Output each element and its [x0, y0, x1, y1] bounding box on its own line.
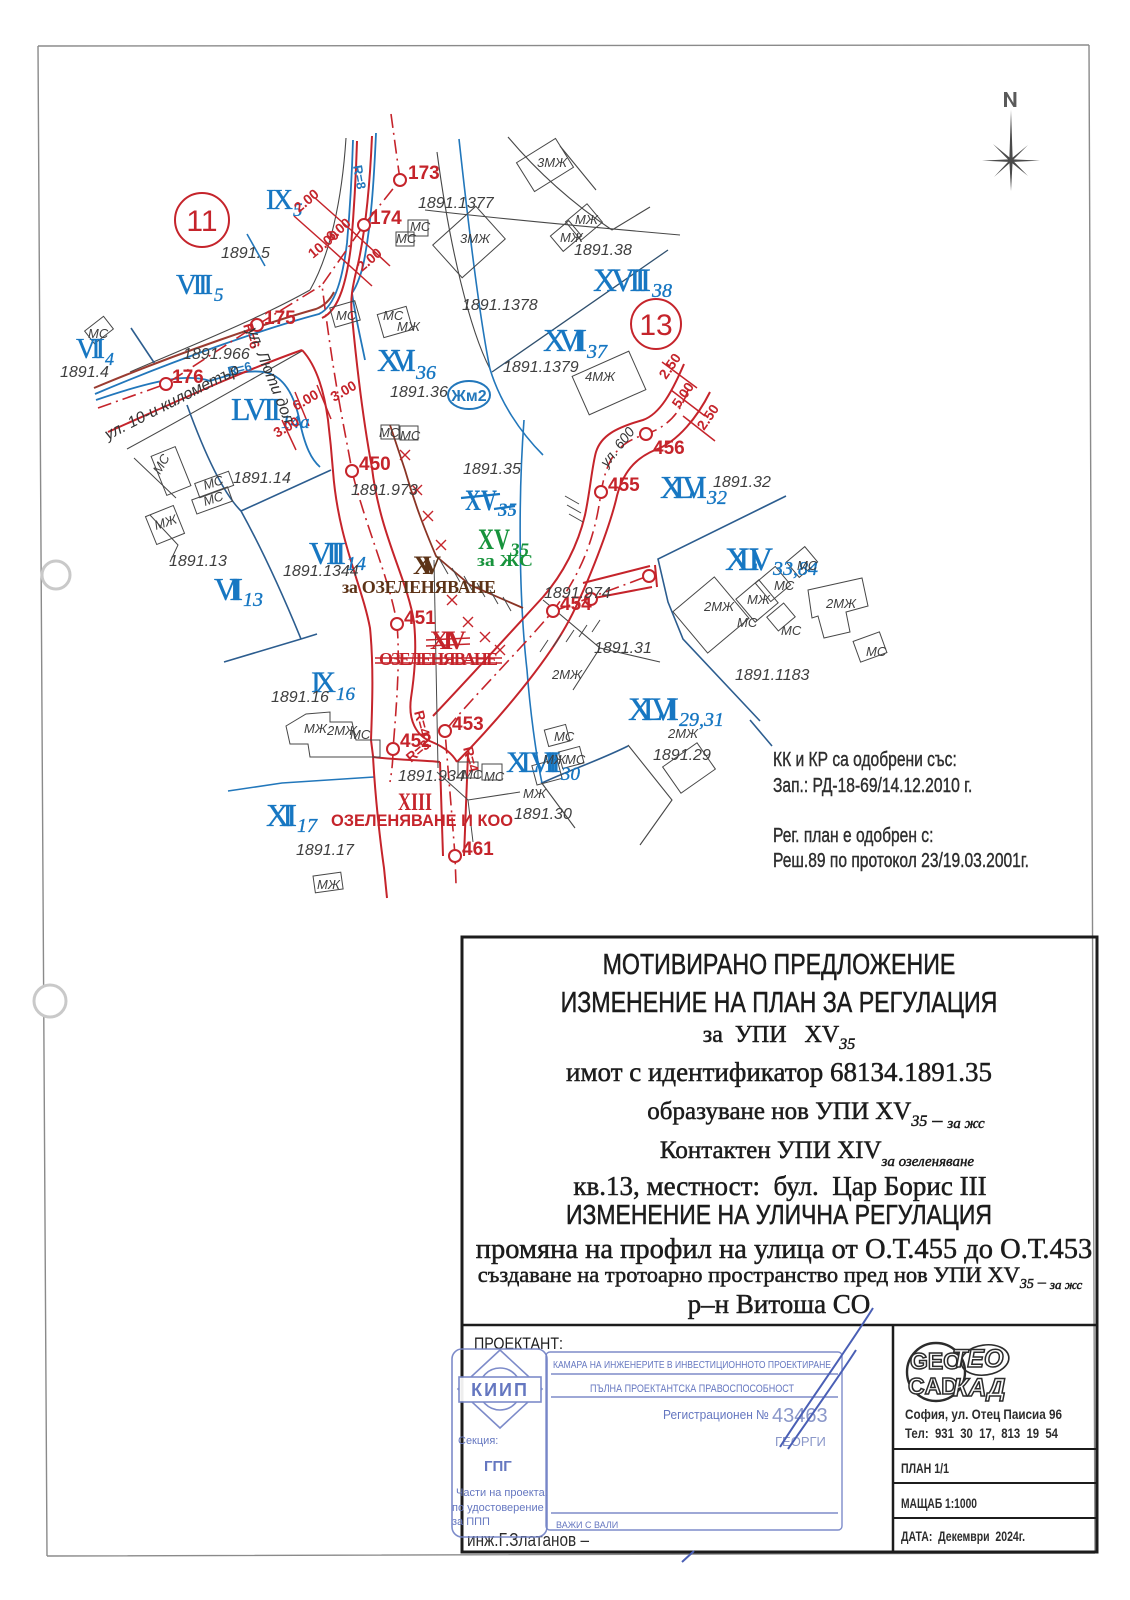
svg-text:МС: МС [797, 558, 818, 573]
svg-text:XLVII: XLVII [628, 692, 679, 728]
svg-text:за ППП: за ППП [452, 1516, 490, 1528]
svg-text:МС: МС [774, 578, 795, 593]
svg-text:1891.1344: 1891.1344 [283, 563, 359, 580]
svg-text:2МЖ: 2МЖ [825, 596, 857, 611]
svg-text:1891.30: 1891.30 [514, 806, 572, 823]
svg-text:1891.32: 1891.32 [713, 474, 771, 491]
svg-text:Регистрационен №: Регистрационен № [663, 1407, 769, 1422]
svg-text:ИЗМЕНЕНИЕ НА УЛИЧНА РЕГУЛАЦИЯ: ИЗМЕНЕНИЕ НА УЛИЧНА РЕГУЛАЦИЯ [566, 1200, 992, 1231]
svg-text:МС: МС [462, 767, 483, 782]
svg-text:ПЛАН 1/1: ПЛАН 1/1 [901, 1460, 949, 1476]
svg-text:451: 451 [404, 608, 436, 629]
svg-text:IX: IX [266, 185, 293, 216]
svg-text:16: 16 [336, 684, 356, 705]
svg-text:МС: МС [400, 428, 421, 443]
svg-text:36: 36 [415, 362, 436, 384]
svg-text:XLIV: XLIV [725, 542, 773, 578]
svg-text:1891.1183: 1891.1183 [735, 667, 810, 684]
svg-text:VII: VII [214, 571, 243, 607]
svg-text:455: 455 [608, 475, 640, 496]
svg-text:1891.1379: 1891.1379 [503, 359, 579, 376]
svg-text:МЖ: МЖ [575, 212, 599, 227]
svg-text:ПЪЛНА ПРОЕКТАНТСКА ПРАВОСПОСОБ: ПЪЛНА ПРОЕКТАНТСКА ПРАВОСПОСОБНОСТ [590, 1383, 794, 1395]
svg-text:МС: МС [336, 308, 357, 323]
svg-text:2МЖ: 2МЖ [667, 726, 699, 741]
svg-text:за ОЗЕЛЕНЯВАНЕ: за ОЗЕЛЕНЯВАНЕ [342, 577, 496, 597]
svg-text:КАМАРА НА ИНЖЕНЕРИТЕ В ИНВЕСТИ: КАМАРА НА ИНЖЕНЕРИТЕ В ИНВЕСТИЦИОННОТО П… [553, 1359, 831, 1371]
svg-text:453: 453 [452, 714, 484, 735]
svg-text:Зап.: РД-18-69/14.12.2010 г.: Зап.: РД-18-69/14.12.2010 г. [773, 774, 972, 796]
svg-text:173: 173 [408, 163, 440, 184]
svg-text:за ЖС: за ЖС [477, 551, 533, 570]
svg-text:1891.4: 1891.4 [60, 364, 109, 381]
svg-text:МОТИВИРАНО ПРЕДЛОЖЕНИЕ: МОТИВИРАНО ПРЕДЛОЖЕНИЕ [603, 947, 956, 980]
svg-text:МЖ: МЖ [152, 511, 179, 533]
svg-text:МС: МС [484, 769, 505, 784]
svg-text:образуване нов УПИ XV35 – за ж: образуване нов УПИ XV35 – за жс [647, 1098, 985, 1132]
svg-text:1891.973: 1891.973 [351, 482, 418, 499]
svg-text:КИИП: КИИП [471, 1380, 529, 1400]
svg-text:София, ул. Отец Паисиа 96: София, ул. Отец Паисиа 96 [905, 1406, 1062, 1422]
svg-text:XV: XV [465, 484, 497, 517]
svg-text:4МЖ: 4МЖ [585, 369, 616, 384]
svg-text:XII: XII [266, 797, 297, 833]
svg-text:30: 30 [560, 764, 581, 785]
svg-text:КАД: КАД [953, 1374, 1005, 1402]
svg-text:МЖ: МЖ [543, 752, 567, 767]
svg-text:МЖ: МЖ [317, 877, 341, 892]
svg-text:МС: МС [379, 425, 400, 440]
svg-text:ГПГ: ГПГ [484, 1458, 512, 1475]
svg-text:МЖ: МЖ [397, 319, 421, 334]
svg-text:1891.1377: 1891.1377 [418, 195, 495, 212]
svg-text:промяна на профил на улица от: промяна на профил на улица от О.Т.455 до… [476, 1234, 1092, 1265]
svg-text:МС: МС [781, 623, 802, 638]
svg-text:кв.13, местност: бул. Цар Бо: кв.13, местност: бул. Цар Борис III [573, 1171, 986, 1201]
svg-text:Тел: 931 30 17, 813 19 5: Тел: 931 30 17, 813 19 54 [905, 1425, 1058, 1441]
svg-text:инж.Г.Златанов –: инж.Г.Златанов – [467, 1530, 589, 1550]
svg-text:ОЗЕЛЕНЯВАНЕ И КОО: ОЗЕЛЕНЯВАНЕ И КОО [331, 812, 513, 830]
svg-text:5: 5 [214, 285, 224, 306]
svg-text:1891.13: 1891.13 [169, 553, 227, 570]
svg-text:ВАЖИ С ВАЛИ: ВАЖИ С ВАЛИ [556, 1520, 618, 1530]
svg-text:XVI: XVI [377, 342, 416, 378]
svg-text:МС: МС [396, 231, 417, 246]
svg-text:ОЗЕЛЕНЯВАНЕ: ОЗЕЛЕНЯВАНЕ [379, 649, 498, 669]
svg-text:38: 38 [651, 280, 672, 302]
svg-text:МС: МС [350, 727, 371, 742]
svg-text:2.50: 2.50 [655, 350, 684, 382]
svg-text:ПРОЕКТАНТ:: ПРОЕКТАНТ: [474, 1334, 563, 1353]
svg-text:МС: МС [88, 326, 109, 341]
svg-text:1891.36: 1891.36 [390, 384, 448, 401]
svg-text:461: 461 [462, 839, 494, 860]
svg-text:Рег. план е одобрен с:: Рег. план е одобрен с: [773, 824, 933, 846]
svg-text:17: 17 [297, 815, 318, 837]
svg-text:XVIII: XVIII [593, 263, 651, 299]
svg-text:175: 175 [264, 308, 296, 329]
svg-text:създаване на тротоарно простра: създаване на тротоарно пространство пред… [478, 1262, 1083, 1292]
svg-text:ДАТА: Декември 2024г.: ДАТА: Декември 2024г. [901, 1528, 1025, 1544]
svg-text:456: 456 [653, 438, 685, 459]
svg-text:6.00: 6.00 [290, 386, 322, 414]
svg-text:Контактен УПИ XIVза озеленяван: Контактен УПИ XIVза озеленяване [660, 1137, 974, 1170]
svg-text:1891.29: 1891.29 [653, 747, 711, 764]
svg-text:35: 35 [497, 500, 518, 521]
svg-text:р–н Витоша СО: р–н Витоша СО [688, 1289, 871, 1319]
svg-text:ТЕО: ТЕО [952, 1345, 1004, 1373]
svg-text:174: 174 [370, 208, 402, 229]
svg-text:Части на проекта:: Части на проекта: [456, 1487, 548, 1499]
svg-text:Реш.89 по протокол 23/19.03.20: Реш.89 по протокол 23/19.03.2001г. [773, 849, 1029, 871]
svg-text:КК и КР са одобрени със:: КК и КР са одобрени със: [773, 748, 957, 770]
svg-text:ул. 600: ул. 600 [596, 424, 638, 471]
svg-text:R=8: R=8 [350, 164, 369, 190]
svg-text:1891.35: 1891.35 [463, 461, 521, 478]
svg-text:XIV: XIV [413, 551, 441, 580]
svg-text:МС: МС [737, 615, 758, 630]
svg-text:3.00: 3.00 [328, 377, 360, 405]
svg-text:Жм2: Жм2 [450, 388, 486, 405]
svg-text:1891.966: 1891.966 [183, 346, 250, 363]
svg-text:МС: МС [866, 644, 887, 659]
svg-text:XLVI: XLVI [660, 469, 707, 505]
svg-text:1891.974: 1891.974 [544, 585, 611, 602]
svg-text:по удостоверение: по удостоверение [452, 1502, 544, 1514]
svg-text:450: 450 [359, 454, 391, 475]
svg-text:МЖ: МЖ [304, 721, 328, 736]
svg-text:13: 13 [243, 589, 263, 611]
svg-text:37: 37 [586, 341, 608, 363]
svg-text:Секция:: Секция: [458, 1435, 498, 1447]
svg-text:МЖ: МЖ [560, 230, 584, 245]
svg-text:XVII: XVII [543, 322, 587, 358]
svg-text:МС: МС [554, 729, 575, 744]
svg-text:МАЩАБ 1:1000: МАЩАБ 1:1000 [901, 1495, 977, 1511]
svg-text:13: 13 [639, 309, 672, 342]
svg-text:1891.16: 1891.16 [271, 689, 329, 706]
svg-text:1891.14: 1891.14 [233, 470, 291, 487]
svg-text:МЖ: МЖ [747, 592, 771, 607]
svg-text:имот с идентификатор 68134.189: имот с идентификатор 68134.1891.35 [566, 1057, 992, 1087]
svg-text:11: 11 [186, 205, 217, 238]
svg-text:МС: МС [565, 752, 586, 767]
svg-text:1891.934: 1891.934 [398, 768, 465, 785]
svg-text:3МЖ: 3МЖ [537, 155, 568, 170]
svg-text:2.00: 2.00 [354, 244, 385, 274]
svg-text:МЖ: МЖ [523, 786, 547, 801]
svg-text:1891.31: 1891.31 [594, 640, 652, 657]
svg-text:ИЗМЕНЕНИЕ НА ПЛАН ЗА РЕГУЛАЦИЯ: ИЗМЕНЕНИЕ НА ПЛАН ЗА РЕГУЛАЦИЯ [561, 985, 998, 1018]
svg-text:МС: МС [150, 451, 173, 477]
svg-text:2МЖ: 2МЖ [703, 599, 735, 614]
svg-text:за УПИ XV35: за УПИ XV35 [703, 1022, 855, 1053]
svg-text:2МЖ: 2МЖ [551, 667, 583, 682]
svg-text:1891.17: 1891.17 [296, 842, 355, 859]
svg-text:1891.1378: 1891.1378 [462, 297, 538, 314]
svg-text:CAD: CAD [908, 1373, 958, 1399]
svg-text:3МЖ: 3МЖ [460, 231, 491, 246]
svg-text:VIII: VIII [176, 269, 213, 301]
svg-text:1891.5: 1891.5 [221, 245, 270, 262]
